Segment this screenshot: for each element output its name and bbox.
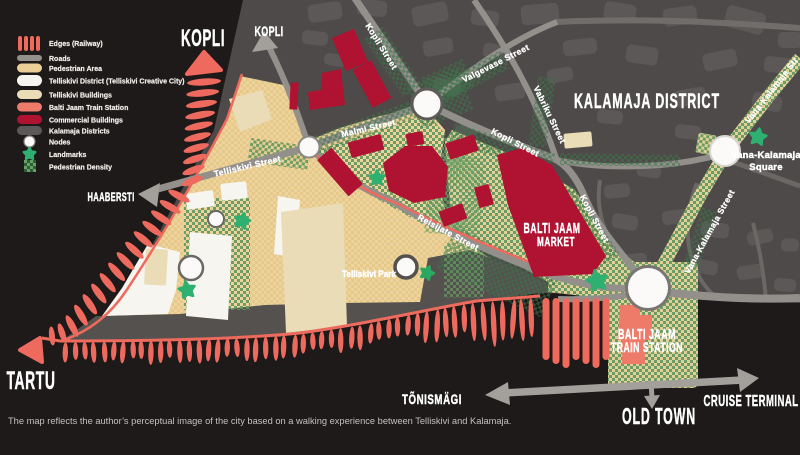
- svg-text:Vana-Kalamaja: Vana-Kalamaja: [731, 150, 800, 161]
- svg-text:TÕNISMÄGI: TÕNISMÄGI: [402, 390, 462, 407]
- svg-text:Pedestrian Area: Pedestrian Area: [49, 66, 102, 73]
- svg-text:Balti Jaam Train Station: Balti Jaam Train Station: [49, 105, 128, 112]
- svg-text:Edges (Railway): Edges (Railway): [49, 41, 103, 48]
- svg-text:Pedestrian Density: Pedestrian Density: [49, 165, 112, 172]
- svg-text:TARTU: TARTU: [7, 367, 56, 395]
- svg-text:Telliskivi District (Telliskiv: Telliskivi District (Telliskivi Creative…: [49, 79, 185, 86]
- svg-text:Nodes: Nodes: [49, 140, 71, 147]
- svg-text:HAABERSTI: HAABERSTI: [88, 190, 135, 204]
- svg-text:MARKET: MARKET: [537, 234, 575, 249]
- svg-text:Commercial Buildings: Commercial Buildings: [49, 118, 123, 125]
- svg-text:The map reflects the author’s: The map reflects the author’s perceptual…: [8, 416, 511, 426]
- svg-text:Square: Square: [749, 162, 782, 173]
- svg-text:Telliskivi Park: Telliskivi Park: [342, 269, 397, 279]
- svg-text:OLD TOWN: OLD TOWN: [622, 403, 696, 429]
- svg-text:CRUISE TERMINAL: CRUISE TERMINAL: [704, 393, 799, 410]
- svg-text:KOPLI: KOPLI: [181, 25, 225, 52]
- svg-text:Roads: Roads: [49, 56, 71, 63]
- svg-text:TRAIN STATION: TRAIN STATION: [611, 340, 683, 355]
- svg-text:Kalamaja Districts: Kalamaja Districts: [49, 129, 110, 136]
- svg-text:Landmarks: Landmarks: [49, 152, 86, 159]
- svg-text:Telliskivi Buildings: Telliskivi Buildings: [49, 93, 112, 100]
- svg-text:KOPLI: KOPLI: [255, 23, 284, 39]
- svg-text:KALAMAJA DISTRICT: KALAMAJA DISTRICT: [574, 90, 720, 113]
